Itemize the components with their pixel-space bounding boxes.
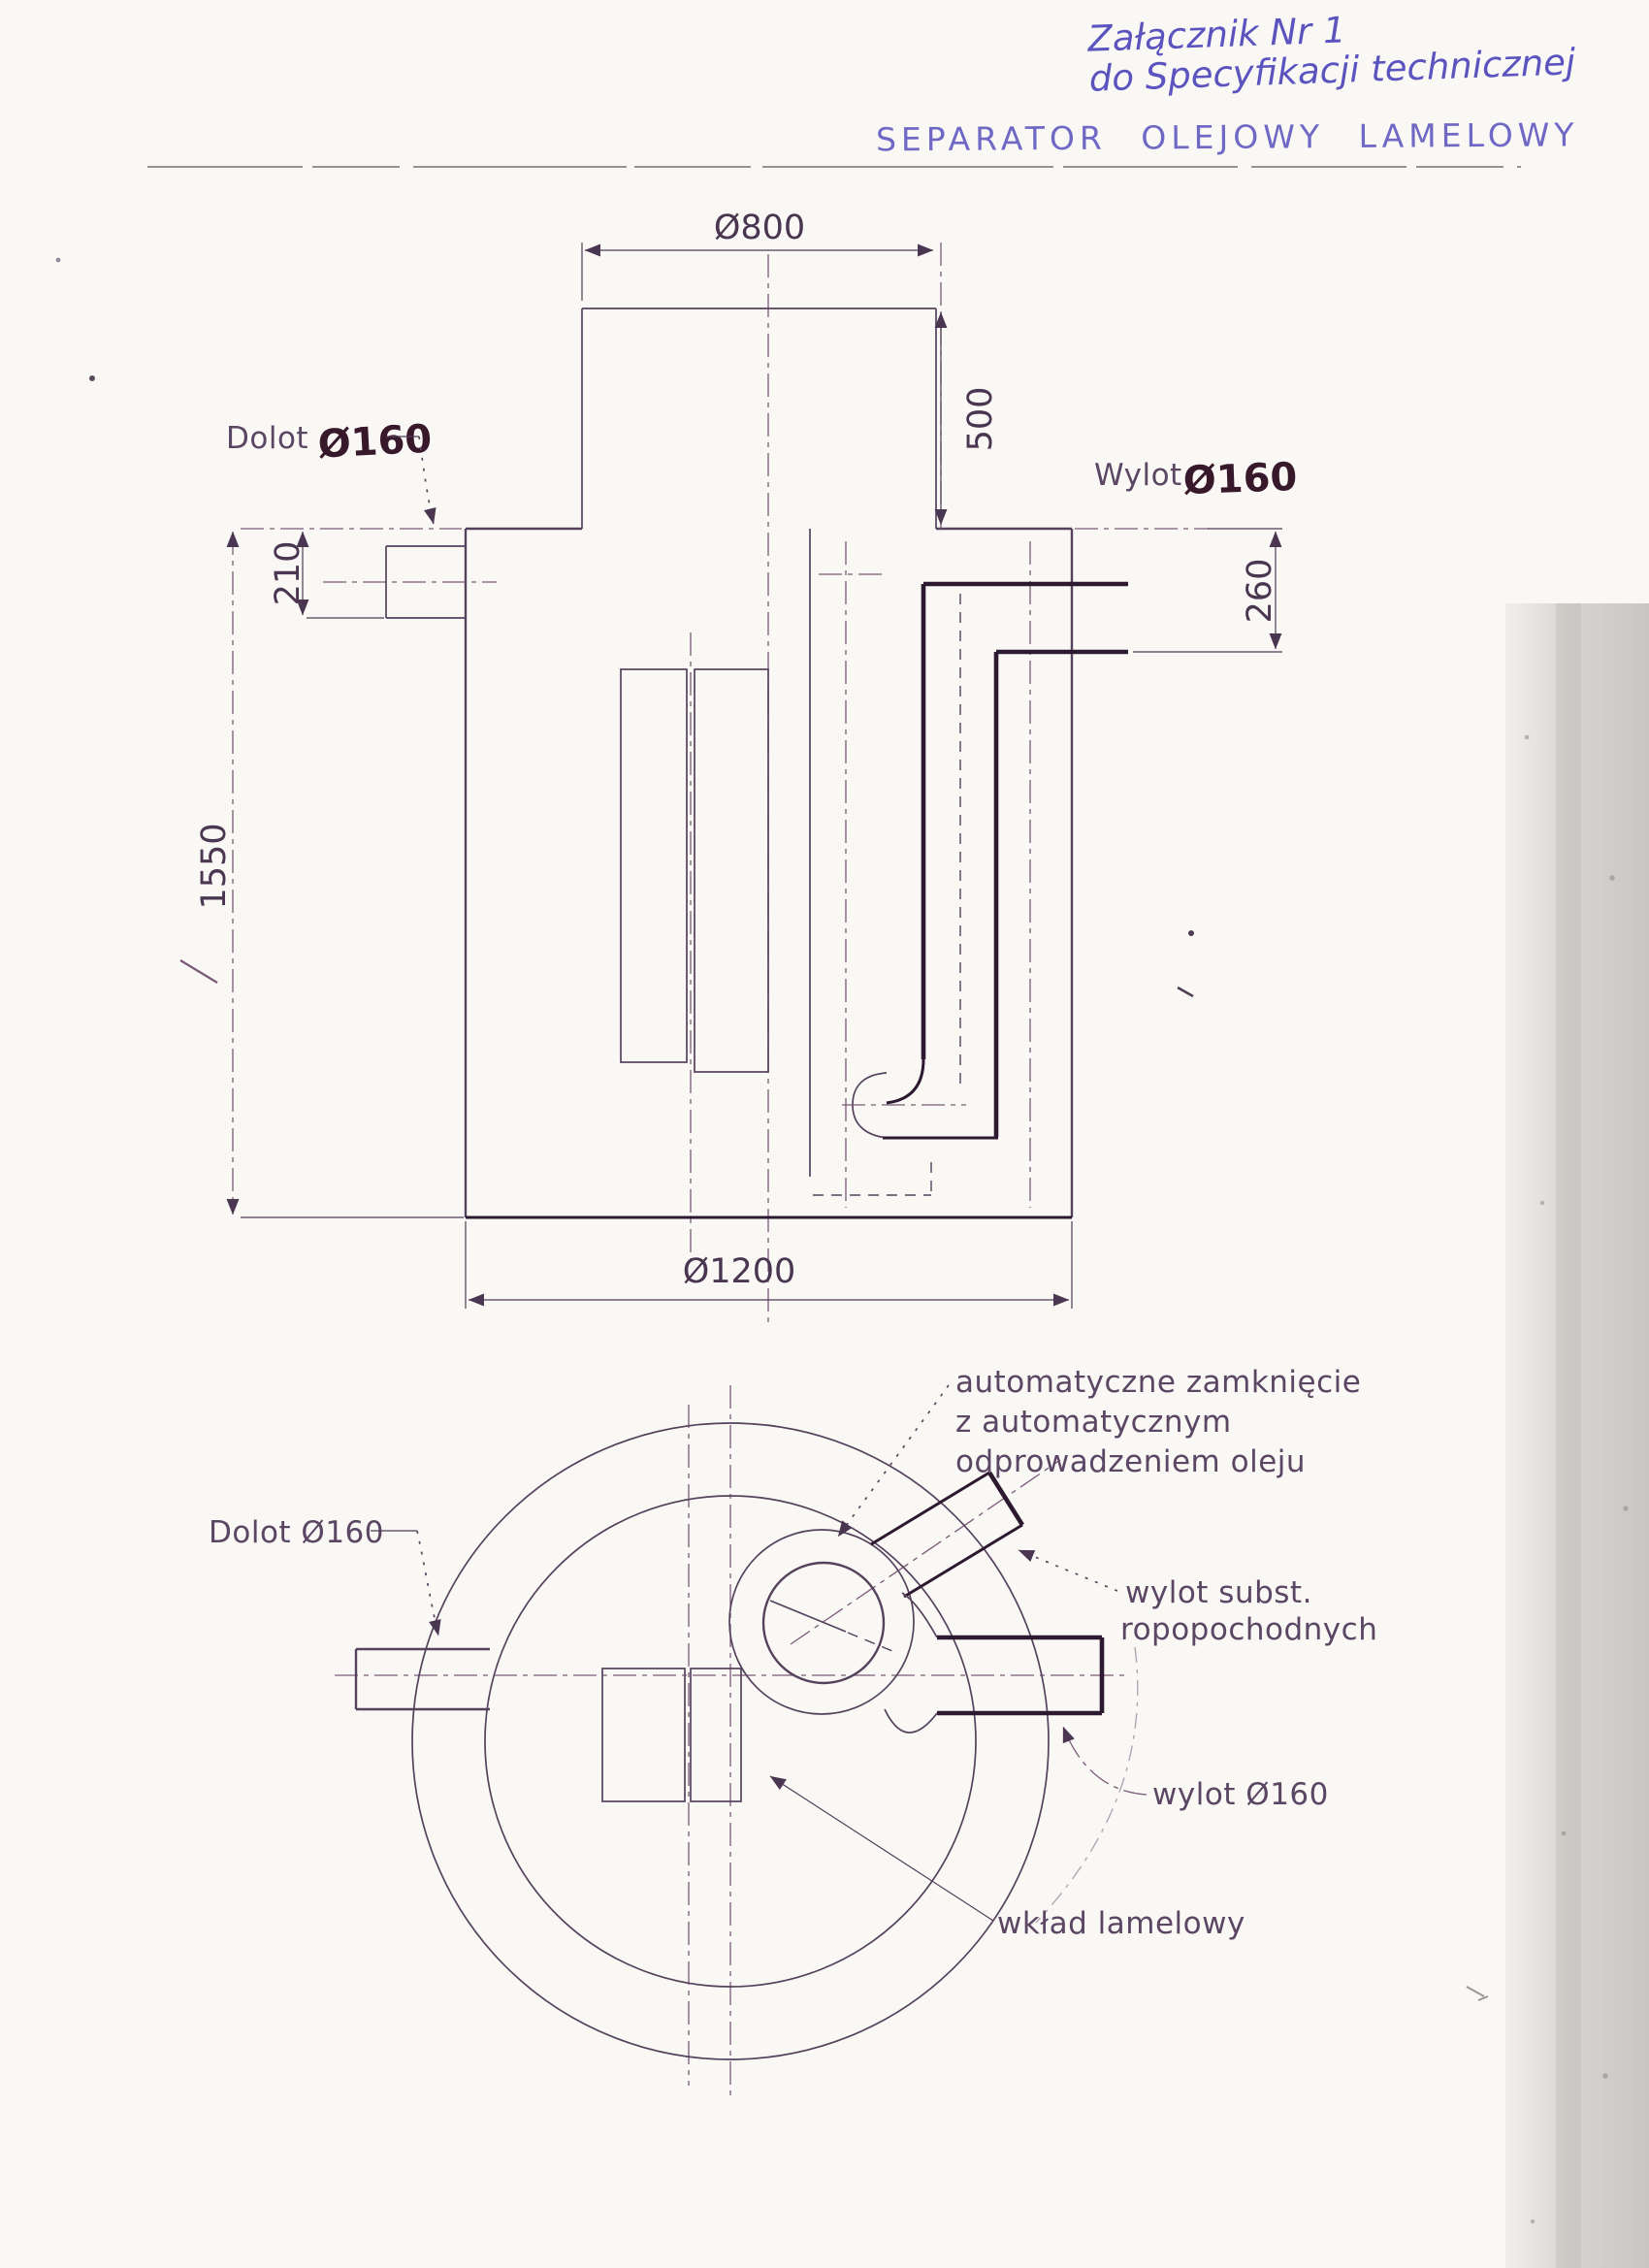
manhole-auto-closure [729,1530,914,1714]
plan-lamella-right [691,1669,741,1801]
plan-center-lines [335,1385,1127,2100]
inner-baffles [810,529,960,1195]
plan-inlet-leader-arrow [417,1531,438,1636]
scanned-page: Załącznik Nr 1 do Specyfikacji techniczn… [0,0,1649,2268]
dim-outlet-invert: 260 [1241,559,1279,624]
oil-outlet-label-line2: ropopochodnych [1120,1612,1377,1647]
dimensions: Ø800 500 210 1550 260 Ø12 [195,209,1282,1309]
lamella-column-right [695,669,768,1072]
oil-outlet-pipe [871,1473,1022,1597]
scan-speck [1467,1987,1488,2000]
dim-tank-diameter: Ø1200 [683,1252,796,1291]
scan-speck [56,258,61,263]
top-view: automatyczne zamknięcie z automatycznym … [209,1365,1377,2100]
auto-closure-leader [838,1385,949,1537]
stray-arc [1036,1647,1138,1923]
front-outlet-size-label: Ø160 [1182,455,1298,503]
lamella-insert-leader [770,1776,993,1921]
plan-outlet-label: wylot Ø160 [1152,1777,1329,1812]
scan-speck [1178,988,1193,996]
plan-inlet-label: Dolot Ø160 [209,1515,384,1550]
center-lines [323,254,1209,1327]
closure-chord-extension [848,1633,892,1651]
closure-chord [770,1601,846,1632]
outlet-elbow [887,1059,923,1103]
plan-outlet-flare-top [902,1593,937,1637]
front-inlet-size-label: Ø160 [317,417,434,468]
lamella-insert-label: wkład lamelowy [997,1906,1245,1941]
front-view: Ø800 500 210 1550 260 Ø12 [195,209,1298,1327]
neck-outline [582,308,936,529]
oil-outlet-label-line1: wylot subst. [1125,1575,1312,1610]
plan-outlet-flare-bottom [885,1709,937,1733]
front-labels: Dolot Ø160 Wylot Ø160 [226,417,1298,524]
plan-outlet-pipe [885,1593,1102,1733]
front-inlet-label: Dolot [226,421,308,456]
dim-tank-height: 1550 [195,823,234,909]
front-outlet-label: Wylot [1094,458,1182,493]
plan-lamella-hatch [602,1669,741,1801]
auto-closure-label-line3: odprowadzeniem oleju [955,1444,1306,1479]
oil-pipe-axis-centerline [791,1460,1060,1644]
scan-speck [89,375,95,381]
oil-pipe-bottom-edge [904,1525,1022,1597]
dim-inlet-invert: 210 [269,541,307,606]
scan-band-streak [1556,603,1581,2268]
scan-speck [1188,930,1194,936]
dim-neck-diameter: Ø800 [714,209,805,247]
auto-closure-label-line2: z automatycznym [955,1405,1232,1440]
oil-pipe-end-cap [989,1473,1022,1525]
technical-drawing: Ø800 500 210 1550 260 Ø12 [0,0,1649,2268]
outlet-pipe-assembly [842,584,1128,1138]
plan-lamella-left [602,1669,685,1801]
dim-neck-height: 500 [961,387,1000,452]
plan-labels: automatyczne zamknięcie z automatycznym … [209,1365,1377,1941]
auto-closure-label-line1: automatyczne zamknięcie [955,1365,1361,1400]
lamella-insert-hatch [621,669,768,1072]
oil-outlet-leader [1018,1550,1117,1591]
bottom-dashed-chamber [813,1162,931,1195]
scan-stray-stroke [180,960,217,983]
lamella-column-left [621,669,687,1062]
